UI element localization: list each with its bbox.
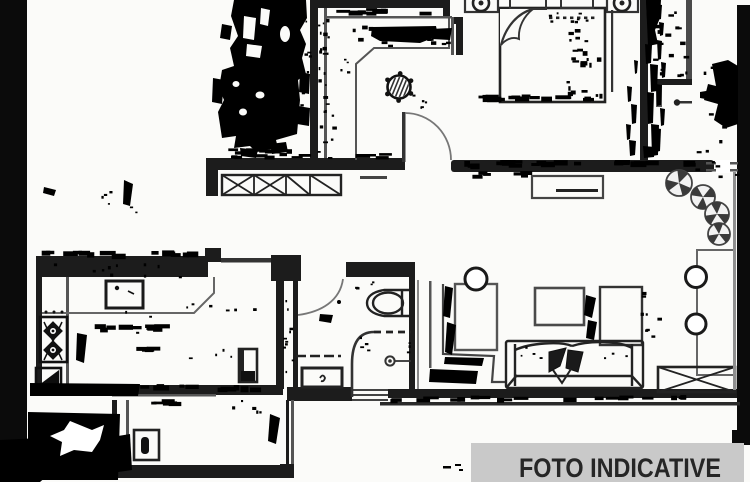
svg-text:FOTO INDICATIVE: FOTO INDICATIVE	[519, 453, 721, 482]
